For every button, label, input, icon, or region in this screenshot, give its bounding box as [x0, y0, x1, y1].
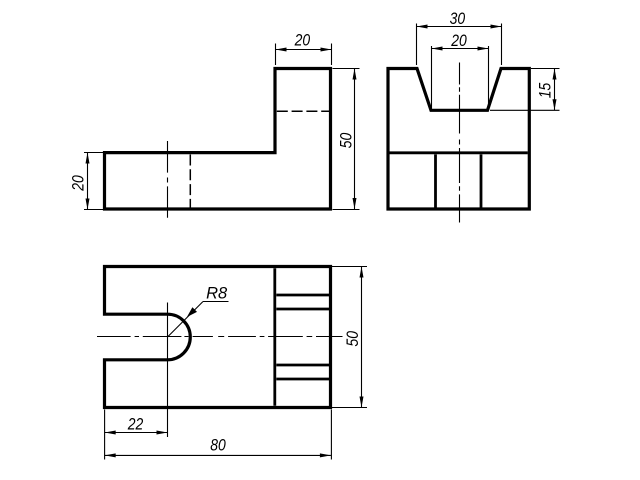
svg-text:50: 50 — [344, 330, 362, 346]
svg-text:15: 15 — [537, 82, 555, 98]
svg-text:20: 20 — [294, 31, 311, 49]
svg-text:50: 50 — [337, 132, 355, 148]
svg-text:20: 20 — [450, 32, 467, 50]
svg-text:80: 80 — [210, 437, 226, 455]
svg-text:30: 30 — [450, 10, 466, 28]
svg-text:R8: R8 — [206, 284, 228, 302]
svg-text:20: 20 — [69, 175, 87, 192]
svg-text:22: 22 — [127, 416, 143, 434]
